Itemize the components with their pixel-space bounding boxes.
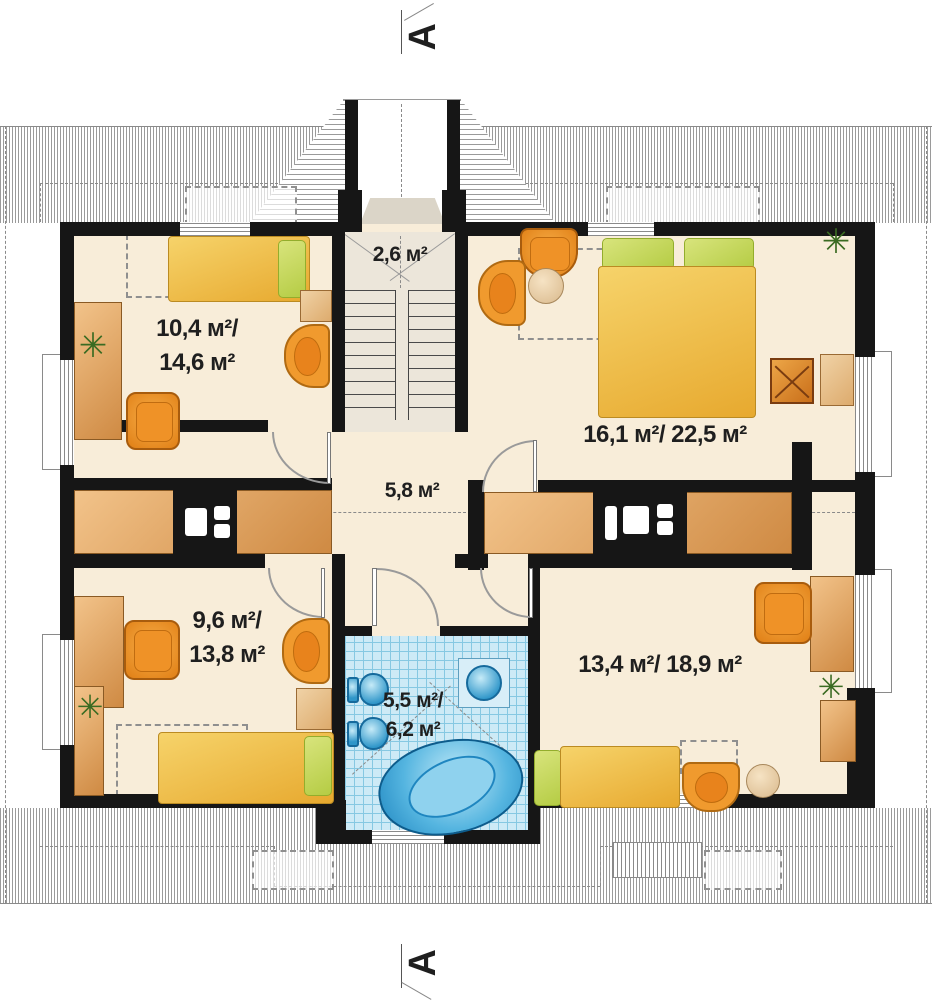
wall-segment [60, 745, 74, 808]
desk [74, 302, 122, 440]
window [588, 222, 654, 236]
roof-verge-right [926, 126, 927, 903]
window-sill [42, 354, 62, 470]
room-label-bedroom-top-right: 16,1 м²/ 22,5 м² [545, 418, 785, 452]
stairwell-wall-stub-right [442, 190, 466, 232]
stair-rail [395, 290, 409, 420]
plant: ✳ [74, 326, 112, 366]
bed-pillow [534, 750, 562, 806]
cabinet-icon [623, 506, 649, 534]
window [855, 575, 875, 688]
wall-segment [60, 465, 74, 640]
dresser [820, 354, 854, 406]
desk [810, 576, 854, 672]
round-table [528, 268, 564, 304]
window-sill [874, 351, 892, 477]
round-table [746, 764, 780, 798]
plant: ✳ [72, 688, 108, 726]
window-sill [874, 569, 892, 693]
wall-segment [855, 222, 875, 357]
room-label-bedroom-top-left: 10,4 м²/ 14,6 м² [126, 312, 268, 379]
cabinet-icon [657, 521, 673, 535]
eaves-detour-right [600, 846, 601, 886]
eaves-corner-top-right [893, 183, 894, 222]
wall-segment [455, 554, 488, 568]
bathroom-door-leaf [372, 568, 377, 626]
eaves-corner-top-left [40, 183, 41, 222]
bed [560, 746, 680, 808]
window [855, 357, 875, 472]
area-line: 6,2 м² [386, 718, 441, 741]
room-label-bedroom-bottom-right: 13,4 м²/ 18,9 м² [540, 648, 780, 682]
door-leaf [327, 432, 331, 484]
armchair [682, 762, 740, 812]
window [60, 360, 74, 465]
window [180, 222, 250, 236]
bed-pillow [304, 736, 332, 796]
stairwell-wall-stub-left [338, 190, 362, 232]
area-line: 5,5 м²/ [383, 689, 443, 712]
bathroom-wall [440, 626, 528, 636]
cabinet-icon [605, 506, 617, 540]
room-label-staircase: 2,6 м² [343, 240, 457, 269]
room-label-bedroom-bottom-left: 9,6 м²/ 13,8 м² [156, 604, 298, 671]
wardrobe-small [820, 700, 856, 762]
area-line: 9,6 м²/ [193, 607, 262, 634]
wall-stub [792, 442, 812, 570]
section-marker-top: A [401, 11, 447, 63]
office-chair [754, 582, 812, 644]
door-leaf [533, 440, 537, 492]
eaves-line-bottom-left [40, 846, 274, 847]
section-marker-bottom: A [401, 937, 447, 989]
cabinet-icon [214, 506, 230, 520]
cabinet-icon [185, 508, 207, 536]
floor-plan: ✳ ✳ ✳ ✳ 2,6 м² 10,4 м²/ 14,6 м² 16,1 м²/… [0, 0, 932, 1000]
area-line: 10,4 м²/ [156, 315, 238, 342]
door-leaf [321, 568, 325, 618]
door-leaf [529, 568, 533, 618]
bathroom-wall [345, 626, 372, 636]
double-bed [598, 266, 756, 418]
roof-window [185, 186, 297, 226]
roof-window [606, 186, 760, 226]
room-label-hall: 5,8 м² [362, 476, 462, 505]
plant: ✳ [816, 224, 856, 260]
wall-segment [60, 222, 74, 360]
area-line: 13,8 м² [189, 641, 265, 668]
wall-segment [250, 222, 339, 236]
stair-upper-landing [360, 198, 445, 224]
window-projection [612, 842, 702, 878]
cabinet-icon [657, 504, 673, 518]
bathroom-wall [332, 830, 372, 844]
side-table [296, 688, 332, 730]
area-line: 14,6 м² [159, 349, 235, 376]
wall-segment [538, 480, 875, 492]
wall-segment [60, 222, 180, 236]
cabinet-icon [214, 524, 230, 538]
office-chair [126, 392, 180, 450]
roof-window [252, 850, 334, 890]
room-label-bathroom: 5,5 м²/ 6,2 м² [352, 686, 474, 745]
roof-verge-left [5, 126, 6, 903]
side-table [300, 290, 332, 322]
roof-window [704, 850, 782, 890]
armchair [478, 260, 526, 326]
square-table [770, 358, 814, 404]
window-sill [42, 634, 62, 750]
